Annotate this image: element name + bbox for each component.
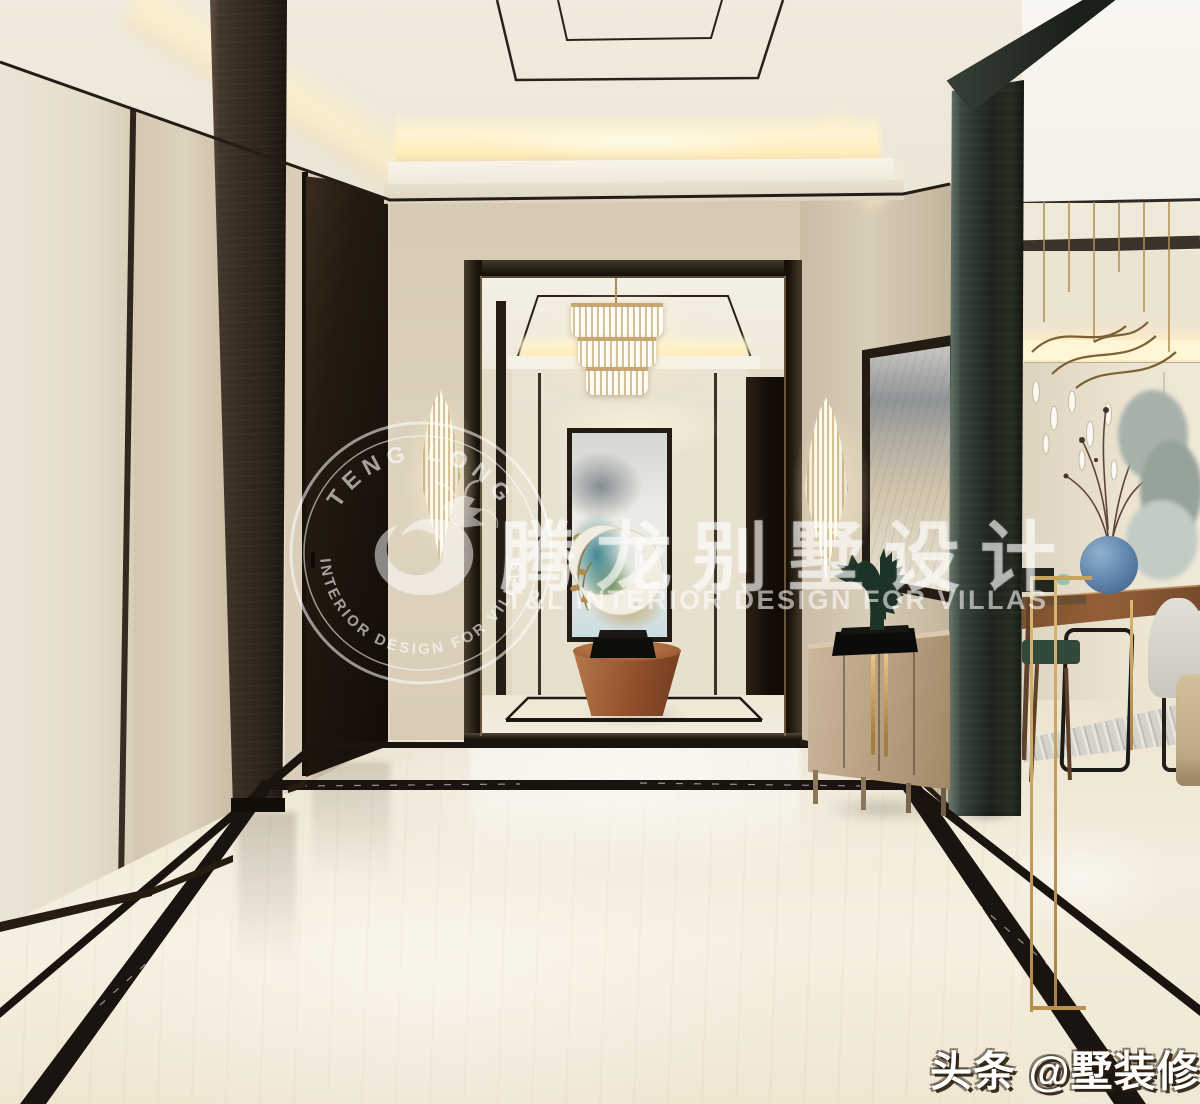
sideboard-gold-handle (871, 655, 875, 755)
crystal-chandelier-tier2 (578, 337, 656, 367)
floor-reflection-pillar (238, 812, 296, 1002)
floor-reflection-door (312, 762, 390, 912)
sideboard-leg (941, 788, 946, 816)
wood-stool (1176, 674, 1200, 786)
gold-console-foot (1030, 1006, 1086, 1010)
toutiao-badge: 头条 @墅装修 (930, 1038, 1190, 1099)
crystal-chandelier-tier1 (571, 303, 663, 337)
frame-highlight-top (480, 276, 786, 278)
svg-text:TENG LONG: TENG LONG (321, 439, 520, 511)
brand-watermark-en: T&L INTERIOR DESIGN FOR VILLAS (506, 585, 1106, 616)
crystal-chandelier-tier3 (586, 367, 648, 395)
sideboard-leg (906, 783, 911, 813)
gold-console-leg (1030, 578, 1033, 1012)
sideboard-leg (813, 770, 818, 804)
floor-reflection-doorway (470, 744, 800, 914)
sideboard-leg (861, 777, 866, 810)
left-wall-panel (0, 0, 134, 950)
gold-chair-leg (1130, 600, 1133, 750)
sideboard-door-seam (878, 649, 880, 771)
svg-text:· INTERIOR DESIGN FOR VILLAS ·: · INTERIOR DESIGN FOR VILLAS · (316, 540, 526, 658)
logo-bottom-text: · INTERIOR DESIGN FOR VILLAS · (316, 540, 526, 658)
column-grain (948, 80, 1024, 816)
interior-rendering-hallway: TENG LONG · INTERIOR DESIGN FOR VILLAS ·… (0, 0, 1200, 1104)
sideboard-gold-handle (884, 653, 888, 757)
doorway-sill (464, 733, 802, 747)
ceiling-cornice (384, 180, 904, 204)
cove-light-core (470, 124, 800, 158)
logo-top-text: TENG LONG (321, 439, 520, 511)
dragon-icon (375, 481, 498, 595)
sideboard-door-seam (843, 652, 845, 768)
gold-console-leg (1054, 578, 1057, 1008)
